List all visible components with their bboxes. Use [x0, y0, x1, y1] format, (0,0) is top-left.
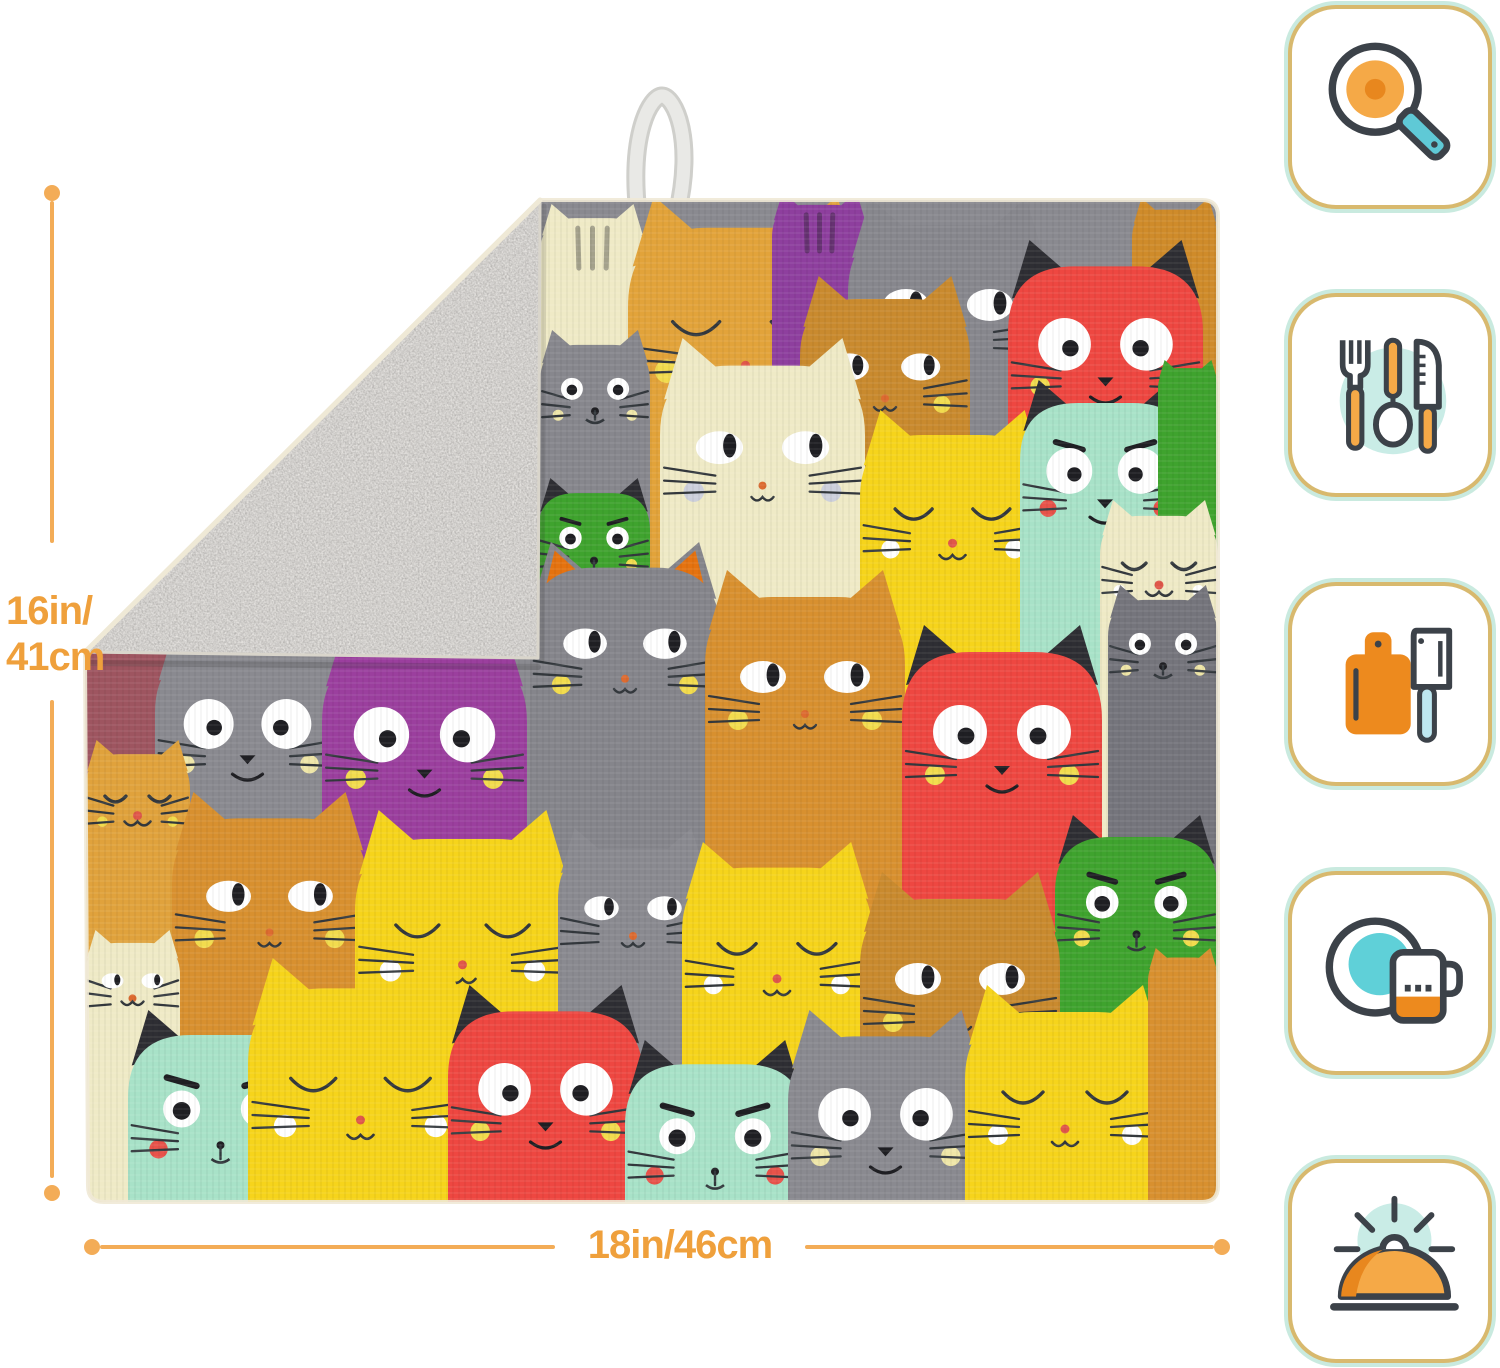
cutting-board-icon: [1316, 610, 1464, 758]
height-label-line1: 16in/: [6, 588, 104, 634]
width-dimension-label: 18in/46cm: [555, 1223, 805, 1268]
utensils-icon: [1316, 321, 1464, 469]
cat-pattern: [85, 192, 1218, 1202]
height-dimension-line-upper: [50, 201, 54, 543]
height-dimension-label: 16in/ 41cm: [6, 588, 104, 680]
feature-badge-serving-dome: [1288, 1159, 1492, 1363]
feature-badge-frying-pan: [1288, 5, 1492, 209]
dimension-dot-right: [1214, 1239, 1230, 1255]
feature-badge-cutting-board: [1288, 582, 1492, 786]
plate-and-mug-icon: [1316, 899, 1464, 1047]
dimension-dot-bottom: [44, 1185, 60, 1201]
dimension-dot-top: [44, 185, 60, 201]
height-dimension-line-lower: [50, 700, 54, 1178]
width-dimension-line-left: [100, 1245, 555, 1249]
frying-pan-icon: [1316, 33, 1464, 181]
serving-dome-icon: [1316, 1187, 1464, 1335]
hanging-loop: [636, 96, 684, 214]
feature-badge-plate-and-mug: [1288, 871, 1492, 1075]
feature-badge-utensils: [1288, 293, 1492, 497]
folded-corner-backing: [85, 200, 540, 658]
height-label-line2: 41cm: [6, 634, 104, 680]
dimension-dot-left: [84, 1239, 100, 1255]
width-dimension-line-right: [805, 1245, 1214, 1249]
product-image-canvas: 16in/ 41cm 18in/46cm: [0, 0, 1500, 1368]
product-photo: [0, 0, 1500, 1368]
